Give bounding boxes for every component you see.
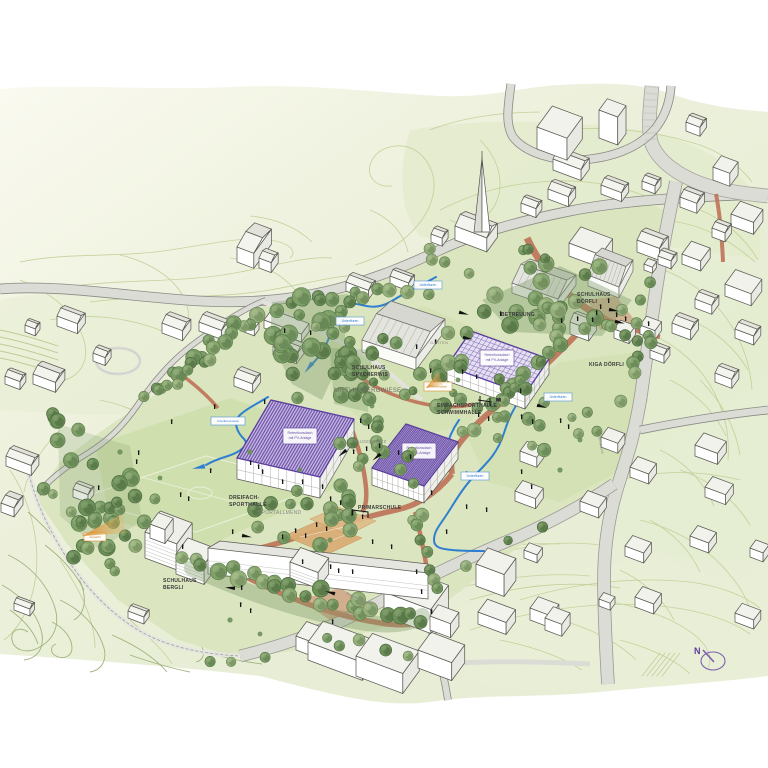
svg-text:DÖRFLI: DÖRFLI [577, 298, 597, 305]
svg-text:SPORTALLMEND: SPORTALLMEND [258, 510, 302, 516]
svg-text:PRIMARSCHULE: PRIMARSCHULE [358, 505, 402, 511]
svg-text:SCHULHAUS: SCHULHAUS [163, 578, 197, 584]
svg-text:Unterfluren: Unterfluren [467, 474, 484, 478]
svg-text:Unterfluren: Unterfluren [550, 395, 567, 399]
svg-text:EINFACHSPORTHALLE: EINFACHSPORTHALLE [437, 403, 498, 409]
svg-text:Unterfluren: Unterfluren [342, 319, 359, 323]
svg-text:SCHULHAUS: SCHULHAUS [577, 292, 611, 298]
svg-text:Retentionsdach: Retentionsdach [485, 353, 510, 357]
svg-text:BETREUUNG: BETREUUNG [501, 312, 535, 318]
svg-text:mit PV-Anlage: mit PV-Anlage [486, 358, 509, 362]
svg-text:KIGA DÖRFLI: KIGA DÖRFLI [589, 361, 624, 368]
svg-text:SCHWIMMHALLE: SCHWIMMHALLE [437, 410, 482, 416]
svg-text:N: N [694, 646, 701, 656]
svg-text:mit PV-Anlage: mit PV-Anlage [289, 436, 312, 440]
svg-text:Aussicht: Aussicht [89, 535, 101, 539]
svg-text:MITTLISTBERGWIESE: MITTLISTBERGWIESE [334, 388, 401, 394]
svg-text:Unterflurcontainer: Unterflurcontainer [217, 419, 239, 423]
svg-text:SPORTHALLE: SPORTHALLE [229, 502, 267, 508]
svg-text:DREIFACH-: DREIFACH- [229, 495, 260, 501]
svg-text:SPYCHERWIS: SPYCHERWIS [352, 372, 388, 378]
svg-text:GARTEN: GARTEN [430, 340, 448, 345]
svg-text:PAUSENPLATZ: PAUSENPLATZ [354, 439, 387, 444]
svg-text:BERGLI: BERGLI [163, 585, 184, 591]
svg-text:Unterfluren: Unterfluren [420, 283, 437, 287]
svg-text:SCHULHAUS: SCHULHAUS [352, 365, 386, 371]
svg-text:Retentionsdach: Retentionsdach [288, 431, 313, 435]
